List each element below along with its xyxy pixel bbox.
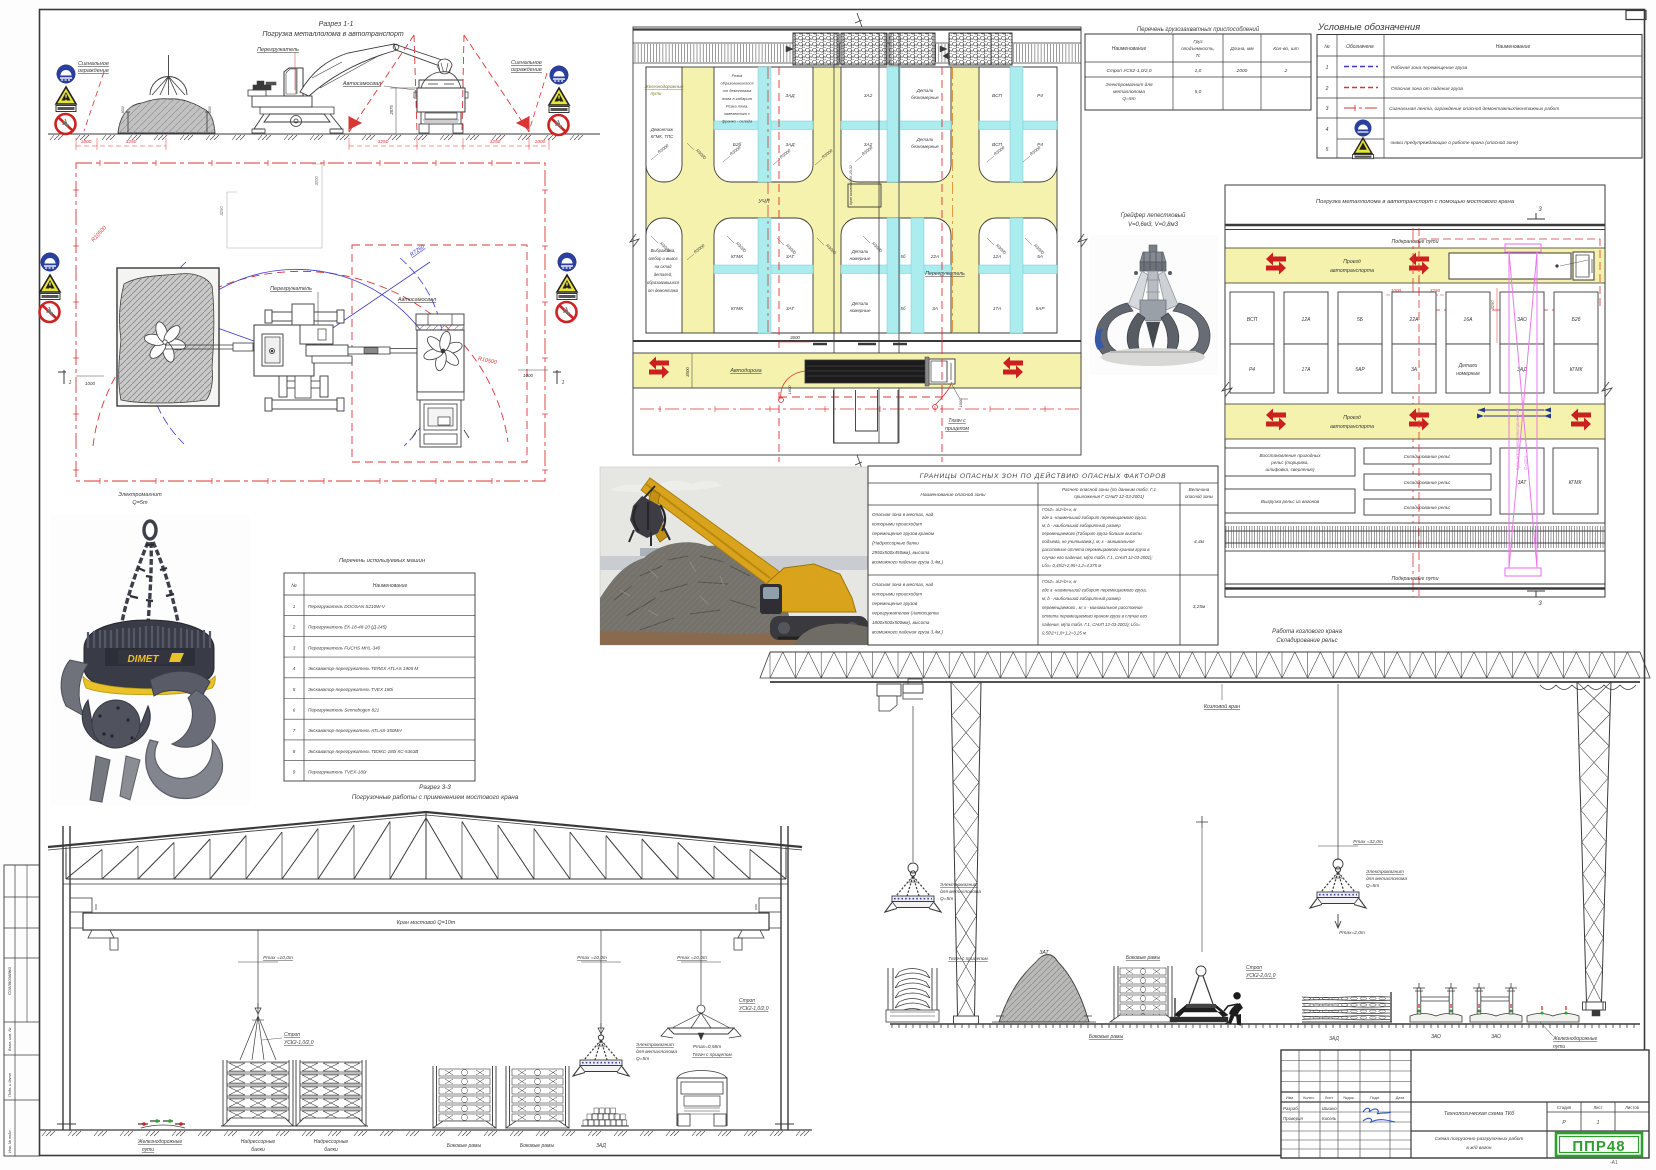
svg-text:1000: 1000	[85, 381, 96, 386]
svg-text:1600: 1600	[787, 385, 792, 395]
svg-text:Лист: Лист	[1325, 1096, 1334, 1100]
svg-text:1000: 1000	[535, 139, 546, 145]
svg-text:Железнодорожные: Железнодорожные	[644, 84, 684, 89]
svg-text:-А1: -А1	[1610, 1160, 1618, 1166]
svg-text:3А: 3А	[1411, 367, 1418, 373]
svg-text:ГОз2= а\2+b+х, м: ГОз2= а\2+b+х, м	[1042, 579, 1077, 584]
svg-text:Электромагнит: Электромагнит	[636, 1042, 674, 1048]
svg-text:Резка: Резка	[732, 73, 744, 78]
svg-text:Длина, мм: Длина, мм	[1229, 46, 1254, 52]
svg-text:0,50\2+1,8+1,2=3,25 м: 0,50\2+1,8+1,2=3,25 м	[1042, 631, 1086, 636]
svg-text:-знаки предупреждающие о работ: -знаки предупреждающие о работе крана (о…	[1389, 139, 1519, 146]
svg-text:прицепом: прицепом	[945, 426, 969, 432]
svg-text:Боковые рамы: Боковые рамы	[1089, 1034, 1124, 1040]
svg-text:Боковые рамы: Боковые рамы	[1126, 955, 1161, 961]
svg-text:Детали: Детали	[1458, 363, 1478, 369]
svg-text:Автодорога: Автодорога	[729, 368, 761, 374]
svg-text:Наименование: Наименование	[1112, 46, 1147, 52]
svg-text:1000: 1000	[81, 139, 92, 145]
svg-text:безномерные: безномерные	[911, 144, 939, 149]
svg-text:Разрез 3-3: Разрез 3-3	[419, 784, 451, 791]
svg-text:Электромагнит: Электромагнит	[1366, 869, 1404, 875]
svg-text:Q=5т: Q=5т	[1122, 96, 1135, 102]
svg-text:УСК2-2,0/1,0: УСК2-2,0/1,0	[1246, 973, 1276, 979]
svg-text:4: 4	[293, 666, 296, 671]
svg-text:22А: 22А	[930, 254, 940, 260]
svg-text:падения, м(по табл. Г.1, СНиП: падения, м(по табл. Г.1, СНиП 12-03-2001…	[1042, 622, 1141, 627]
svg-text:5АР: 5АР	[1035, 306, 1045, 312]
svg-text:Сигнальная лента, ограждение о: Сигнальная лента, ограждение опасной дем…	[1389, 105, 1559, 112]
svg-text:ГОз2= а\2+b+х, м: ГОз2= а\2+b+х, м	[1042, 507, 1077, 512]
svg-text:DIMET: DIMET	[127, 654, 159, 665]
svg-text:в ж/д вагон: в ж/д вагон	[1466, 1145, 1491, 1151]
svg-text:Взам. инв. №: Взам. инв. №	[8, 1028, 12, 1051]
svg-text:которыми происходит: которыми происходит	[872, 522, 922, 527]
svg-text:образовавшегося: образовавшегося	[720, 81, 754, 86]
svg-text:Складирование рельс: Складирование рельс	[1404, 480, 1452, 485]
svg-text:перемещение грузов: перемещение грузов	[872, 601, 918, 606]
svg-text:3600: 3600	[790, 335, 800, 340]
svg-text:Автосамосвал: Автосамосвал	[397, 297, 436, 303]
svg-text:3АД: 3АД	[1329, 1036, 1339, 1042]
svg-text:9: 9	[293, 770, 296, 775]
svg-text:Согласовано: Согласовано	[7, 967, 12, 995]
svg-text:3А2: 3А2	[864, 142, 873, 148]
svg-text:3А: 3А	[932, 306, 938, 312]
svg-text:1: 1	[293, 604, 296, 609]
svg-text:Q=10т: Q=10т	[1523, 456, 1528, 470]
svg-text:5А: 5А	[1037, 254, 1043, 260]
svg-text:Детали: Детали	[851, 249, 869, 254]
svg-text:м; b - наибольший габаритный р: м; b - наибольший габаритный размер	[1042, 523, 1121, 528]
svg-text:3: 3	[293, 645, 296, 650]
svg-text:Перегружатель: Перегружатель	[257, 47, 299, 53]
svg-text:УСК2-1,0/2,0: УСК2-1,0/2,0	[739, 1006, 769, 1012]
svg-text:1: 1	[69, 380, 72, 386]
svg-text:Строп: Строп	[284, 1032, 300, 1038]
svg-text:Погрузка металлолома в автотра: Погрузка металлолома в автотранспорт с п…	[1316, 199, 1515, 205]
svg-text:3АО: 3АО	[1491, 1034, 1501, 1040]
svg-text:Условные обозначения: Условные обозначения	[1317, 22, 1420, 33]
svg-text:Надрессорные: Надрессорные	[241, 1139, 276, 1145]
svg-text:КГМК, ТПС: КГМК, ТПС	[651, 134, 675, 139]
svg-text:возможного падения груза 3,4м.: возможного падения груза 3,4м.)	[872, 560, 943, 565]
svg-text:Перечень используемых машин: Перечень используемых машин	[339, 558, 426, 564]
svg-text:Груз: Груз	[1193, 39, 1203, 44]
svg-text:Lбз= 0,45\2+2,95+1,2=4,375 м: Lбз= 0,45\2+2,95+1,2=4,375 м	[1042, 563, 1101, 568]
svg-text:Железнодорожные: Железнодорожные	[1552, 1036, 1597, 1042]
svg-text:16А: 16А	[1464, 317, 1474, 323]
svg-text:4,4м: 4,4м	[1194, 539, 1205, 545]
svg-text:3: 3	[1326, 106, 1329, 112]
svg-text:3000: 3000	[208, 106, 212, 113]
svg-text:Тягач с прицепом: Тягач с прицепом	[948, 956, 988, 962]
svg-text:Строп: Строп	[1246, 965, 1262, 971]
svg-text:Сигнальное: Сигнальное	[78, 61, 109, 67]
svg-text:м; b - наибольший габаритный р: м; b - наибольший габаритный размер	[1042, 596, 1121, 601]
svg-text:Экскаватор-перегружатель ТВЭК: Экскаватор-перегружатель ТВЭКС-180i КС-5…	[308, 749, 418, 754]
svg-text:оподъемность,: оподъемность,	[1181, 46, 1215, 51]
svg-text:3АО: 3АО	[1517, 317, 1527, 323]
svg-text:Q=5т: Q=5т	[132, 500, 148, 506]
svg-text:Технологическая схема ТКб: Технологическая схема ТКб	[1444, 1111, 1515, 1117]
svg-text:3АТ: 3АТ	[1518, 480, 1528, 486]
svg-text:3АТ: 3АТ	[786, 254, 795, 260]
svg-text:3250: 3250	[378, 139, 389, 145]
svg-text:образовавшихся: образовавшихся	[647, 280, 680, 285]
svg-text:2: 2	[1284, 68, 1288, 74]
svg-text:1: 1	[1597, 1120, 1600, 1126]
svg-text:2000: 2000	[1236, 68, 1248, 74]
svg-text:УСК2-1,0/2,0: УСК2-1,0/2,0	[284, 1040, 314, 1046]
svg-text:для металлолома: для металлолома	[1366, 876, 1407, 882]
svg-text:№: №	[1324, 44, 1330, 50]
svg-text:Перегружатель: Перегружатель	[270, 286, 312, 292]
svg-text:Надрессорные: Надрессорные	[314, 1139, 349, 1145]
svg-text:Проверил: Проверил	[1283, 1116, 1304, 1121]
svg-text:пути: пути	[1553, 1044, 1565, 1050]
svg-text:Опасная зона в местах, над: Опасная зона в местах, над	[872, 582, 934, 587]
svg-text:шлифовка, сверление): шлифовка, сверление)	[1266, 467, 1315, 472]
svg-text:Перегружатель DOOSAN S210W-V: Перегружатель DOOSAN S210W-V	[308, 604, 386, 609]
svg-text:для металлолома: для металлолома	[940, 889, 981, 895]
svg-text:Рабочая зона перемещение груза: Рабочая зона перемещение груза	[1391, 65, 1468, 71]
svg-text:Pmax=0,58т: Pmax=0,58т	[693, 1044, 721, 1050]
svg-text:рельс (торцовка,: рельс (торцовка,	[1270, 460, 1309, 465]
svg-text:3500: 3500	[685, 367, 690, 377]
svg-text:Строп: Строп	[739, 998, 755, 1004]
svg-text:возможного падения груза 3,4м.: возможного падения груза 3,4м.)	[872, 630, 943, 635]
svg-text:6: 6	[293, 708, 296, 713]
svg-text:Детали: Детали	[916, 137, 934, 142]
svg-text:ВСП: ВСП	[992, 93, 1003, 99]
svg-text:ГРАНИЦЫ ОПАСНЫХ ЗОН ПО ДЕЙСТВИ: ГРАНИЦЫ ОПАСНЫХ ЗОН ПО ДЕЙСТВИЮ ОПАСНЫХ …	[920, 471, 1167, 480]
svg-text:ППР48: ППР48	[1572, 1138, 1625, 1155]
svg-text:подъема, не учитываем.), м; х: подъема, не учитываем.), м; х - минималь…	[1042, 539, 1135, 544]
svg-text:5Б: 5Б	[1357, 317, 1364, 323]
svg-text:опасной зоны: опасной зоны	[1185, 494, 1214, 499]
svg-text:3АД: 3АД	[1517, 367, 1527, 373]
svg-text:Складирование рельс: Складирование рельс	[1404, 505, 1452, 510]
svg-text:от демонтажа: от демонтажа	[723, 88, 752, 93]
svg-text:Изм.: Изм.	[1286, 1096, 1294, 1100]
svg-text:где а -наименьший габарит пере: где а -наименьший габарит перемещаемого …	[1042, 515, 1147, 520]
svg-text:Боковые рамы: Боковые рамы	[520, 1143, 555, 1149]
svg-text:Расчет опасной зоны (по данным: Расчет опасной зоны (по данным табл. Г.1	[1062, 486, 1157, 492]
svg-text:Электромагнит: Электромагнит	[940, 882, 978, 888]
svg-text:Б2б: Б2б	[733, 142, 742, 148]
svg-text:3А2: 3А2	[864, 93, 873, 99]
svg-text:3250: 3250	[126, 139, 137, 145]
svg-text:Перечень грузозахватных приспо: Перечень грузозахватных приспособлений	[1137, 26, 1260, 33]
svg-text:Подкрановые пути: Подкрановые пути	[1392, 576, 1439, 582]
svg-text:Выгрузка рельс из вагонов: Выгрузка рельс из вагонов	[1261, 499, 1320, 504]
svg-text:12А: 12А	[993, 254, 1002, 260]
svg-text:Дата: Дата	[1396, 1096, 1405, 1100]
svg-text:7: 7	[293, 728, 296, 733]
svg-text:5: 5	[1326, 147, 1329, 153]
svg-text:Р4: Р4	[1037, 93, 1043, 99]
svg-text:Подкрановые пути: Подкрановые пути	[1392, 239, 1439, 245]
svg-text:номерные: номерные	[850, 256, 871, 261]
svg-text:Кол-во, шт: Кол-во, шт	[1273, 46, 1298, 52]
svg-text:Автосамосвал: Автосамосвал	[342, 81, 381, 87]
svg-text:Pmax =10,0т: Pmax =10,0т	[677, 955, 707, 961]
svg-text:Q=5т: Q=5т	[636, 1056, 649, 1062]
svg-text:Электромагнит для: Электромагнит для	[1105, 82, 1153, 88]
svg-text:автотранспорта: автотранспорта	[1330, 424, 1374, 430]
svg-text:Величина: Величина	[1189, 487, 1210, 492]
svg-text:Боковые рамы: Боковые рамы	[447, 1143, 482, 1149]
svg-text:от демонтажа: от демонтажа	[648, 288, 679, 293]
svg-text:Резка лома,: Резка лома,	[726, 103, 748, 108]
svg-text:расстояние отлета перемещаемог: расстояние отлета перемещаемого краном г…	[1041, 547, 1150, 552]
svg-text:3250: 3250	[1490, 300, 1495, 310]
svg-text:металлолома: металлолома	[1113, 90, 1145, 95]
svg-text:КГМК: КГМК	[1569, 480, 1583, 486]
svg-text:Наименование: Наименование	[373, 583, 408, 589]
svg-text:перемещаемого (Габарит груза б: перемещаемого (Габарит груза больше высо…	[1042, 531, 1143, 536]
svg-text:8: 8	[293, 749, 296, 754]
svg-text:3АД: 3АД	[596, 1143, 606, 1149]
svg-text:1800х500х500мм), высота: 1800х500х500мм), высота	[872, 620, 930, 625]
svg-text:Работа козлового крана: Работа козлового крана	[1272, 629, 1343, 635]
svg-text:Pmax =32,0т: Pmax =32,0т	[1353, 839, 1383, 845]
svg-text:Опасная зона от падения груза: Опасная зона от падения груза	[1391, 86, 1463, 92]
svg-text:1: 1	[1326, 65, 1329, 71]
svg-text:Кран мостовой электрический: Кран мостовой электрический	[1515, 408, 1520, 470]
svg-text:Pmax=2,0т: Pmax=2,0т	[1339, 930, 1365, 936]
svg-text:Экскаватор-перегружатель ATLA: Экскаватор-перегружатель ATLAS-350MH	[308, 728, 402, 733]
svg-text:Железнодорожные: Железнодорожные	[137, 1139, 182, 1145]
svg-text:Складирование рельс: Складирование рельс	[1404, 454, 1452, 459]
svg-text:1000: 1000	[523, 373, 534, 378]
svg-text:17А: 17А	[993, 306, 1002, 312]
svg-text:КГМК: КГМК	[731, 306, 744, 312]
svg-text:Обозначене: Обозначене	[1346, 44, 1374, 50]
svg-text:Кран мостовой Q=10т: Кран мостовой Q=10т	[397, 919, 456, 926]
svg-text:Демонтаж: Демонтаж	[650, 127, 674, 132]
svg-text:3000: 3000	[314, 176, 319, 186]
svg-text:ВСП: ВСП	[1247, 317, 1258, 323]
svg-text:17А: 17А	[1302, 367, 1312, 373]
svg-text:где а -наименьший габарит пере: где а -наименьший габарит перемещаемого …	[1042, 588, 1147, 593]
svg-text:1,0: 1,0	[1195, 68, 1202, 74]
svg-text:Тягач с: Тягач с	[948, 418, 966, 424]
svg-text:Наименование: Наименование	[1496, 44, 1531, 50]
svg-text:Выбраковка,: Выбраковка,	[651, 248, 676, 253]
svg-text:Козловой кран: Козловой кран	[1204, 703, 1240, 710]
svg-text:приложения Г СНиП 12-03-2001): приложения Г СНиП 12-03-2001)	[1074, 494, 1144, 499]
svg-text:1: 1	[562, 380, 565, 386]
svg-text:балки: балки	[324, 1147, 338, 1153]
svg-text:Наименование опасной зоны: Наименование опасной зоны	[920, 491, 986, 498]
svg-text:завезенного с: завезенного с	[723, 111, 750, 116]
svg-text:КГМК: КГМК	[1570, 367, 1584, 373]
svg-text:Строп УСК2-1,0/2,0: Строп УСК2-1,0/2,0	[1106, 68, 1151, 74]
svg-text:Перегружатель FUCHS MHL-340: Перегружатель FUCHS MHL-340	[308, 645, 381, 650]
svg-text:Стадия: Стадия	[1557, 1105, 1571, 1110]
svg-text:22А: 22А	[1409, 317, 1420, 323]
svg-text:2: 2	[292, 625, 296, 630]
svg-text:пути: пути	[651, 91, 662, 96]
svg-text:номерные: номерные	[1456, 371, 1480, 377]
svg-text:Экскаватор-перегружатель TVEX: Экскаватор-перегружатель TVEX 180i	[308, 687, 394, 692]
svg-text:3000: 3000	[121, 106, 125, 113]
svg-text:безномерные: безномерные	[911, 95, 939, 100]
svg-text:Подп.: Подп.	[1370, 1096, 1380, 1100]
svg-text:Складирование рельс: Складирование рельс	[1276, 638, 1337, 644]
svg-text:3,25м: 3,25м	[1193, 604, 1206, 610]
svg-text:Погрузочные работы с применени: Погрузочные работы с применением мостово…	[352, 793, 519, 801]
svg-text:отлета перемещаемого краном гр: отлета перемещаемого краном груза в случ…	[1042, 613, 1148, 618]
svg-text:ограждение: ограждение	[78, 68, 109, 74]
svg-text:Инв. № подл.: Инв. № подл.	[8, 1129, 12, 1153]
svg-text:Тс: Тс	[1196, 53, 1202, 58]
svg-text:3250: 3250	[219, 206, 224, 216]
svg-text:ограждение: ограждение	[511, 67, 542, 73]
svg-text:КГМК: КГМК	[731, 254, 744, 260]
svg-text:Б2б: Б2б	[1572, 317, 1581, 323]
svg-text:V=0,6м3, V=0,8м3: V=0,6м3, V=0,8м3	[1128, 222, 1179, 228]
svg-text:Проезд: Проезд	[1343, 415, 1361, 421]
svg-text:№: №	[291, 583, 297, 589]
svg-text:3АД: 3АД	[785, 93, 795, 99]
svg-text:Схема погрузочно-разгрузочных: Схема погрузочно-разгрузочных работ	[1435, 1136, 1524, 1142]
svg-text:Шишко: Шишко	[1322, 1106, 1337, 1111]
svg-text:Разраб.: Разраб.	[1283, 1106, 1299, 1111]
svg-text:Лист: Лист	[1593, 1105, 1602, 1110]
svg-text:номерные: номерные	[850, 308, 871, 313]
svg-text:(Надрессорные балки: (Надрессорные балки	[872, 541, 919, 546]
svg-text:3АТ: 3АТ	[786, 306, 795, 312]
svg-text:автотранспорта: автотранспорта	[1330, 268, 1374, 274]
svg-text:на склад: на склад	[655, 264, 673, 269]
svg-text:5,0: 5,0	[1195, 89, 1202, 95]
svg-text:Опасная зона в местах, над: Опасная зона в местах, над	[872, 512, 934, 517]
svg-text:Q=5т: Q=5т	[940, 896, 953, 902]
svg-text:Листов: Листов	[1625, 1105, 1639, 1110]
svg-text:Разрез 1-1: Разрез 1-1	[319, 21, 354, 28]
svg-text:Перегружатель: Перегружатель	[925, 271, 965, 277]
svg-text:№док.: №док.	[1343, 1096, 1354, 1100]
svg-text:Погрузка металлолома в автотра: Погрузка металлолома в автотранспорт	[262, 31, 404, 38]
svg-text:перемещение грузов краном: перемещение грузов краном	[872, 531, 935, 536]
svg-text:деталей,: деталей,	[654, 272, 673, 277]
svg-text:Перегружатель Sennebogen 821: Перегружатель Sennebogen 821	[308, 708, 380, 713]
svg-text:2950х500х450мм), высота: 2950х500х450мм), высота	[871, 550, 930, 555]
svg-text:Детали: Детали	[851, 301, 869, 306]
svg-text:Р4: Р4	[1037, 142, 1043, 148]
svg-text:Кисель: Кисель	[1322, 1116, 1337, 1121]
svg-text:Pmax =10,0т: Pmax =10,0т	[263, 955, 293, 961]
svg-text:Тягач с прицепом: Тягач с прицепом	[692, 1052, 732, 1058]
svg-text:12А: 12А	[1302, 317, 1312, 323]
svg-text:3250: 3250	[490, 139, 501, 145]
svg-text:отбор и вывоз: отбор и вывоз	[648, 256, 677, 261]
svg-text:4: 4	[1326, 127, 1329, 133]
svg-text:франко - склада: франко - склада	[722, 119, 753, 124]
svg-text:случае его падения, м(по табл.: случае его падения, м(по табл. Г.1, СНиП…	[1042, 555, 1153, 560]
svg-text:5: 5	[293, 687, 296, 692]
svg-text:которыми происходит: которыми происходит	[872, 592, 922, 597]
svg-text:3АД: 3АД	[785, 142, 795, 148]
svg-text:Q=5т: Q=5т	[1366, 883, 1379, 889]
svg-text:ВСП: ВСП	[992, 142, 1003, 148]
svg-text:перегружателем (Автосцепка: перегружателем (Автосцепка	[872, 611, 939, 616]
svg-text:5б: 5б	[901, 254, 906, 259]
svg-text:Сигнальное: Сигнальное	[511, 60, 542, 66]
svg-text:Восстановление пригодных: Восстановление пригодных	[1259, 453, 1321, 458]
svg-text:Грейфер лепестковый: Грейфер лепестковый	[1121, 212, 1186, 219]
svg-text:Колич.: Колич.	[1303, 1096, 1315, 1100]
svg-text:Р4: Р4	[1249, 367, 1255, 373]
svg-text:5б: 5б	[901, 306, 906, 311]
svg-text:Pmax =10,0т: Pmax =10,0т	[577, 955, 607, 961]
svg-text:Экскаватор-перегружатель TEREX: Экскаватор-перегружатель TEREX ATLAS 190…	[308, 666, 418, 671]
svg-text:лома в габарит: лома в габарит	[721, 96, 753, 101]
svg-text:Проезд: Проезд	[1343, 259, 1361, 265]
svg-text:2875: 2875	[389, 105, 394, 116]
svg-text:Кран козловой КК-20-32: Кран козловой КК-20-32	[849, 165, 853, 205]
svg-text:5АР: 5АР	[1355, 367, 1365, 373]
svg-text:перемещаемого , м; х - минимал: перемещаемого , м; х - минимальное расст…	[1042, 605, 1143, 610]
svg-text:Перегружатель TVEX-180i: Перегружатель TVEX-180i	[308, 770, 367, 775]
svg-text:для металлолома: для металлолома	[636, 1049, 677, 1055]
svg-text:3АО: 3АО	[1431, 1034, 1441, 1040]
svg-text:балки: балки	[251, 1147, 265, 1153]
svg-text:пути: пути	[142, 1147, 154, 1153]
svg-text:Подп. и дата: Подп. и дата	[8, 1073, 12, 1097]
svg-text:Электромагнит: Электромагнит	[118, 492, 162, 498]
svg-text:Детали: Детали	[916, 88, 934, 93]
svg-text:2: 2	[1325, 86, 1329, 92]
svg-text:3АТ: 3АТ	[1039, 950, 1049, 956]
svg-text:Перегружатель ЕК-18-48-20 (Д-2: Перегружатель ЕК-18-48-20 (Д-245)	[308, 625, 387, 630]
